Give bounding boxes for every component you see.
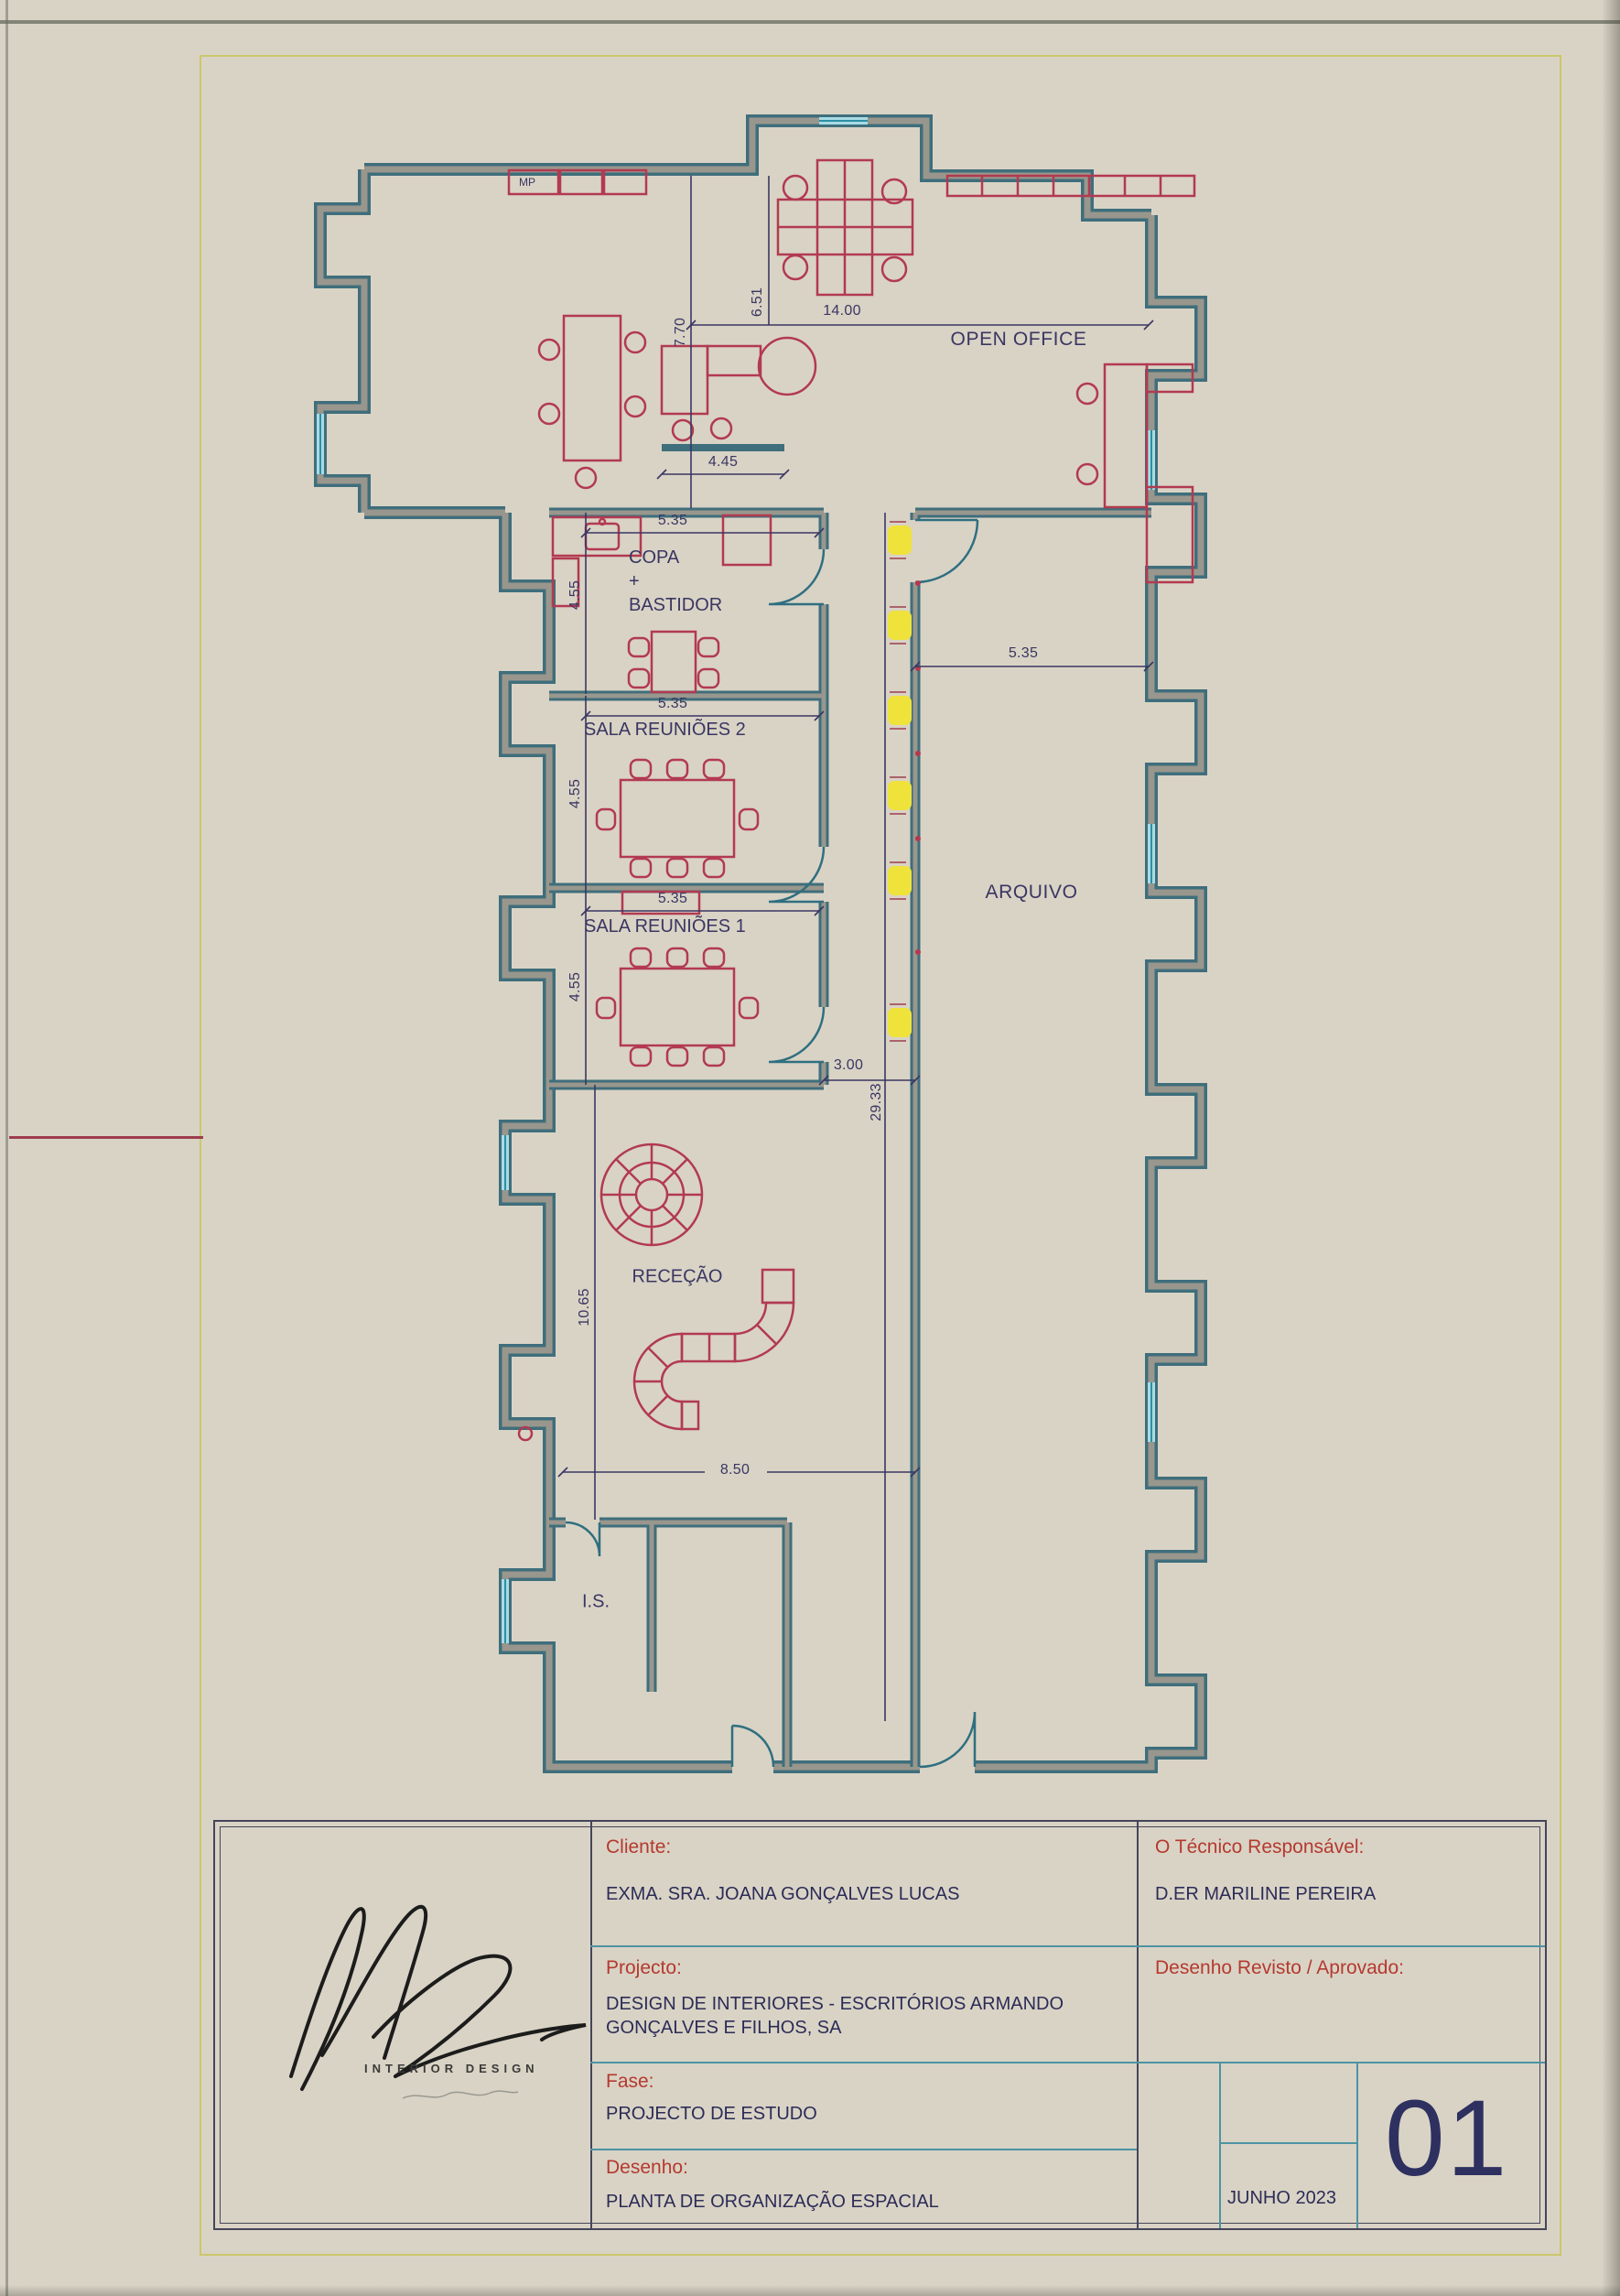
desenho-label: Desenho: [606, 2157, 688, 2179]
title-block: Cliente: EXMA. SRA. JOANA GONÇALVES LUCA… [213, 1820, 1547, 2230]
room-label-copa-bastidor: COPA + BASTIDOR [629, 546, 722, 617]
fase-label: Fase: [606, 2071, 654, 2093]
tb-divider-right-col [1137, 1822, 1139, 2228]
fase-value: PROJECTO DE ESTUDO [606, 2102, 817, 2126]
dim-corridor-width: 3.00 [834, 1057, 863, 1074]
tb-row-line-1 [590, 1945, 1545, 1947]
logo-subtitle: INTERIOR DESIGN [364, 2062, 539, 2075]
sheet-number: 01 [1385, 2076, 1508, 2201]
date-value: JUNHO 2023 [1227, 2186, 1336, 2210]
room-label-arquivo: ARQUIVO [985, 882, 1077, 904]
desenho-value: PLANTA DE ORGANIZAÇÃO ESPACIAL [606, 2190, 939, 2214]
interior-walls [549, 513, 1151, 1767]
projecto-value: DESIGN DE INTERIORES - ESCRITÓRIOS ARMAN… [606, 1992, 1118, 2040]
tb-row-line-2 [590, 2062, 1545, 2063]
tb-date-cell-top [1219, 2142, 1356, 2144]
tb-sheet-cell-left [1356, 2062, 1358, 2228]
furniture [509, 160, 1194, 1440]
dim-copa-width: 5.35 [658, 513, 687, 529]
scanned-floor-plan-sheet: { "page": { "sheet_color": "#d9d3c5", "b… [0, 0, 1620, 2296]
sala2-table [597, 760, 758, 877]
tb-date-cell-left [1219, 2062, 1221, 2228]
dim-open-depth: 6.51 [750, 287, 766, 317]
dim-rececao-depth: 10.65 [577, 1288, 593, 1327]
room-label-open-office: OPEN OFFICE [951, 329, 1087, 351]
tb-row-line-3 [590, 2149, 1137, 2150]
round-sofa [601, 1144, 702, 1245]
room-label-sala2: SALA REUNIÕES 2 [584, 720, 746, 741]
left-desk [539, 316, 645, 488]
tecnico-label: O Técnico Responsável: [1155, 1836, 1364, 1858]
room-label-is: I.S. [582, 1592, 610, 1613]
reception-counter [634, 1270, 794, 1429]
dim-rececao-width: 8.50 [720, 1462, 750, 1478]
tb-divider-logo [590, 1822, 592, 2228]
dim-open-width: 14.00 [823, 303, 861, 319]
cliente-value: EXMA. SRA. JOANA GONÇALVES LUCAS [606, 1882, 959, 1906]
dim-sala1-depth: 4.55 [567, 972, 584, 1002]
revisto-label: Desenho Revisto / Aprovado: [1155, 1957, 1404, 1979]
dim-arquivo-width: 5.35 [1009, 645, 1038, 662]
right-desk [1077, 364, 1193, 582]
dim-sala2-depth: 4.55 [567, 779, 584, 808]
cliente-label: Cliente: [606, 1836, 671, 1858]
cross-desk-cluster [778, 160, 913, 295]
room-label-sala1: SALA REUNIÕES 1 [584, 916, 746, 937]
dim-open-left-depth: 7.70 [673, 318, 689, 347]
dim-copa-depth: 4.55 [567, 580, 584, 610]
dim-sala1-width: 5.35 [658, 891, 687, 907]
dim-sala2-width: 5.35 [658, 696, 687, 712]
projecto-label: Projecto: [606, 1957, 682, 1979]
room-label-rececao: RECEÇÃO [632, 1267, 723, 1288]
curved-desk [662, 338, 815, 440]
tecnico-value: D.ER MARILINE PEREIRA [1155, 1882, 1376, 1906]
dim-corridor-length: 29.33 [869, 1083, 885, 1121]
dim-screen-width: 4.45 [708, 454, 738, 471]
room-label-mp: MP [519, 176, 535, 189]
